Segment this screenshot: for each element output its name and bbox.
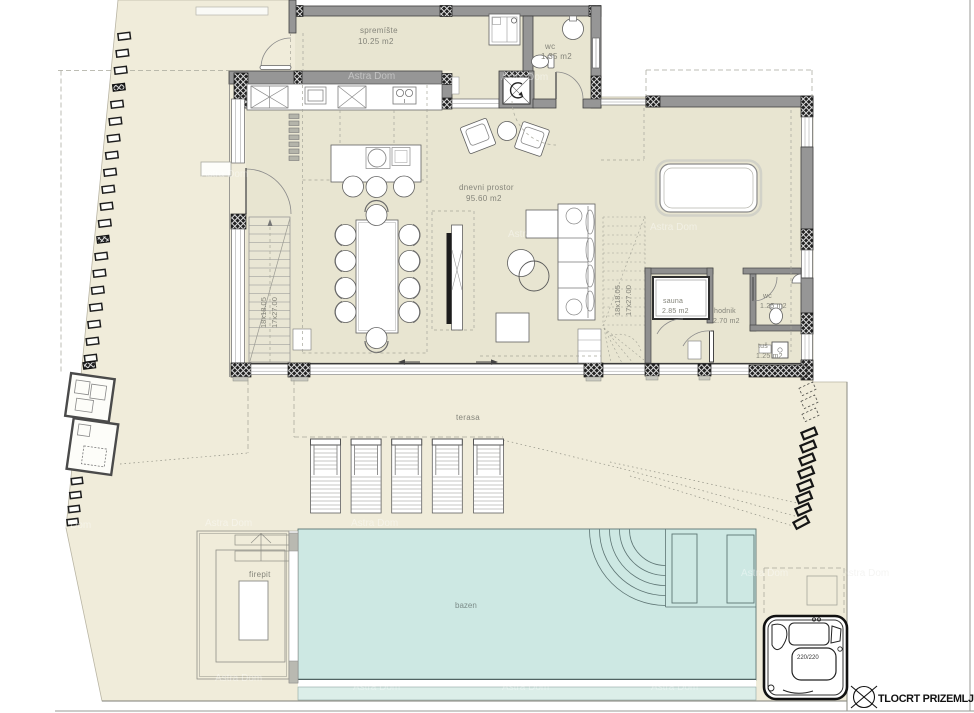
svg-text:17x27.00: 17x27.00 [624, 285, 633, 316]
svg-text:Astra Dom: Astra Dom [353, 682, 400, 693]
svg-text:TLOCRT PRIZEMLJA: TLOCRT PRIZEMLJA [878, 693, 974, 705]
svg-text:2.85 m2: 2.85 m2 [662, 308, 689, 315]
svg-text:tuš: tuš [758, 343, 768, 350]
svg-text:hodnik: hodnik [714, 308, 736, 315]
svg-text:Astra Dom: Astra Dom [651, 682, 698, 693]
svg-text:18x18.05: 18x18.05 [613, 285, 622, 316]
svg-text:Astra Dom: Astra Dom [201, 169, 248, 180]
svg-text:Astra Dom: Astra Dom [741, 568, 788, 579]
svg-text:2.70 m2: 2.70 m2 [713, 318, 740, 325]
svg-text:Astra Dom: Astra Dom [44, 520, 91, 531]
svg-text:Astra Dom: Astra Dom [508, 229, 555, 240]
svg-text:1.25 m2: 1.25 m2 [756, 353, 783, 360]
svg-text:10.25 m2: 10.25 m2 [358, 37, 394, 46]
svg-text:1.35 m2: 1.35 m2 [541, 52, 572, 61]
svg-text:wc: wc [762, 293, 772, 300]
svg-text:Astra Dom: Astra Dom [842, 568, 889, 579]
svg-text:Astra Dom: Astra Dom [351, 518, 398, 529]
svg-text:Astra Dom: Astra Dom [502, 682, 549, 693]
svg-text:1.25 m2: 1.25 m2 [760, 303, 787, 310]
svg-text:Astra Dom: Astra Dom [205, 518, 252, 529]
svg-text:95.60 m2: 95.60 m2 [466, 194, 502, 203]
svg-text:Astra Dom: Astra Dom [215, 673, 262, 684]
svg-text:spremíšte: spremíšte [360, 26, 398, 35]
svg-text:wc: wc [544, 42, 555, 51]
svg-text:firepit: firepit [249, 570, 271, 579]
svg-text:dnevni prostor: dnevni prostor [459, 183, 514, 192]
svg-text:220/220: 220/220 [797, 655, 819, 661]
svg-text:17x27.00: 17x27.00 [270, 297, 279, 328]
svg-text:terasa: terasa [456, 413, 480, 422]
svg-text:Astra Dom: Astra Dom [703, 169, 750, 180]
svg-text:18x18.05: 18x18.05 [259, 297, 268, 328]
svg-text:sauna: sauna [663, 298, 683, 305]
svg-text:Astra Dom: Astra Dom [348, 71, 395, 82]
svg-text:bazen: bazen [455, 601, 477, 610]
svg-text:Astra Dom: Astra Dom [650, 222, 697, 233]
svg-text:Astra Dom: Astra Dom [501, 72, 548, 83]
svg-text:Astra Dom: Astra Dom [58, 60, 105, 71]
